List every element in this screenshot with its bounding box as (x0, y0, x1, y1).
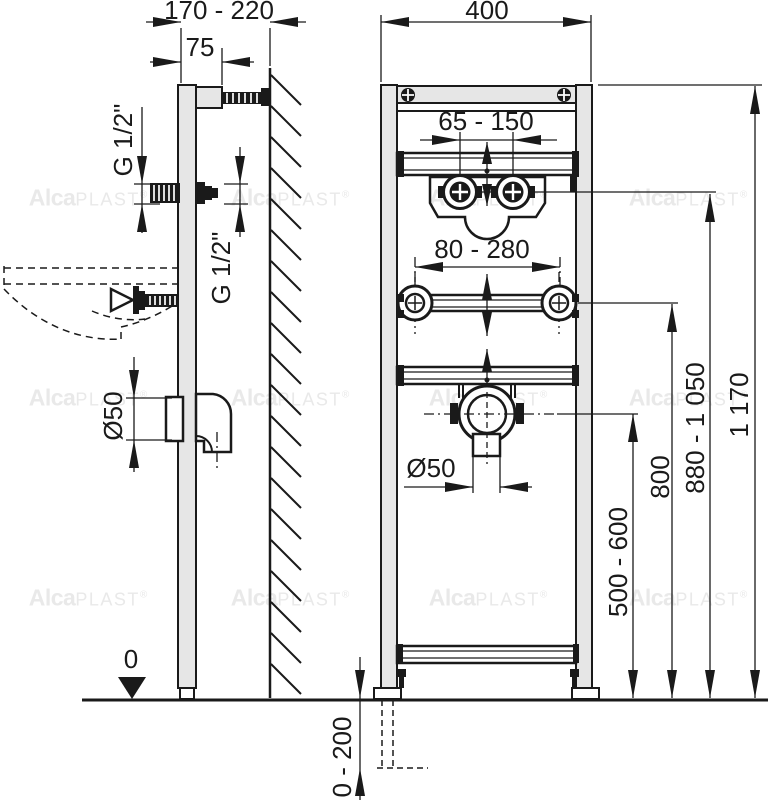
arrow (355, 670, 365, 698)
arrow (129, 370, 139, 398)
top-crossbar (397, 86, 576, 103)
dim-height-drain: 500 - 600 (605, 507, 631, 617)
arrow (482, 312, 492, 336)
arrow (137, 156, 147, 184)
water-fitting-rear-1 (196, 182, 205, 204)
foot-plate-right (572, 688, 599, 699)
dim-frame-width-lines (381, 15, 591, 82)
arrow (705, 670, 715, 698)
arrow (482, 274, 492, 300)
arrow (750, 670, 760, 698)
arrow (270, 17, 298, 27)
foot-plate-left (374, 688, 401, 699)
rail-tab-2 (397, 310, 404, 318)
arrow (432, 135, 460, 145)
basin-bolt-washer-2 (139, 291, 145, 310)
arrow (513, 135, 541, 145)
arrow (750, 86, 760, 114)
arrow (500, 482, 528, 492)
foot-bolt-right-b (572, 677, 577, 688)
water-fitting-rear-3 (212, 188, 218, 198)
arrow (235, 156, 245, 184)
front-rail-left (381, 85, 397, 688)
label-floor-zero: 0 (124, 646, 138, 672)
arrow (667, 670, 677, 698)
dim-front-offset: 75 (186, 34, 215, 60)
arrow (137, 204, 147, 232)
lower-crossbar-clip-left (397, 365, 404, 386)
tap-adjust-dot (485, 169, 490, 174)
side-frame-profile (178, 85, 196, 688)
arrow (532, 262, 560, 272)
arrow (705, 194, 715, 222)
label-thread-rear: G 1/2" (208, 232, 234, 305)
arrow (563, 17, 591, 27)
basin-bolt-cone (111, 289, 133, 311)
arrow (628, 414, 638, 442)
wall-anchor (261, 88, 270, 106)
basin-bolt-washer-1 (133, 286, 139, 314)
reference-lines (532, 85, 762, 414)
plate-clip-right (570, 176, 577, 192)
rail-tab-3 (572, 294, 579, 302)
bottom-clip-right (573, 644, 579, 663)
arrow (482, 184, 492, 206)
dim-bolt-spacing: 80 - 280 (434, 236, 529, 262)
arrow (129, 440, 139, 468)
foot-extension-dashed (377, 700, 428, 768)
label-thread-front: G 1/2" (110, 104, 136, 177)
arrow (381, 17, 409, 27)
label-drain-front: Ø50 (406, 455, 455, 481)
rail-tab-1 (397, 294, 404, 302)
dim-frame-depth-lines (146, 22, 306, 83)
dim-height-frame: 1 170 (726, 372, 752, 437)
foot-bolt-left-b (399, 677, 404, 688)
wall-bracket (196, 87, 222, 108)
side-view (4, 68, 301, 699)
label-drain-side: Ø50 (100, 391, 126, 440)
foot-bolt-right-a (570, 669, 579, 677)
dim-height-taps: 880 - 1 050 (682, 362, 708, 494)
foot-bolt-left-a (397, 669, 406, 677)
upper-crossbar-clip-right (572, 151, 579, 177)
rail-tab-4 (572, 310, 579, 318)
side-frame-foot (180, 688, 194, 699)
arrow (667, 304, 677, 332)
dim-floor-adjust: 0 - 200 (329, 717, 355, 798)
drain-adjust-dot (485, 378, 490, 383)
upper-crossbar-clip-left (397, 151, 404, 177)
bottom-clip-left (397, 644, 403, 663)
drain-elbow (196, 394, 231, 452)
dim-frame-width: 400 (465, 0, 508, 23)
arrow (482, 349, 492, 372)
dim-frame-depth: 170 - 220 (164, 0, 274, 23)
installation-drawing: AlcaPLAST®AlcaPLAST®AlcaPLAST®AlcaPLAST®… (0, 0, 780, 800)
arrow (628, 670, 638, 698)
side-drain-pipe (166, 397, 183, 441)
arrow (445, 482, 473, 492)
floor-zero-marker (118, 677, 146, 699)
bottom-crossbar-lines (397, 651, 576, 658)
wall-hatching (271, 75, 301, 694)
dim-height-bolts: 800 (647, 455, 673, 498)
arrow (153, 57, 181, 67)
arrow (235, 204, 245, 232)
arrow (222, 57, 250, 67)
water-fitting-rear-2 (205, 186, 212, 200)
bottom-crossbar (397, 646, 576, 663)
dim-tap-spacing: 65 - 150 (438, 108, 533, 134)
lower-crossbar-clip-right (572, 365, 579, 386)
